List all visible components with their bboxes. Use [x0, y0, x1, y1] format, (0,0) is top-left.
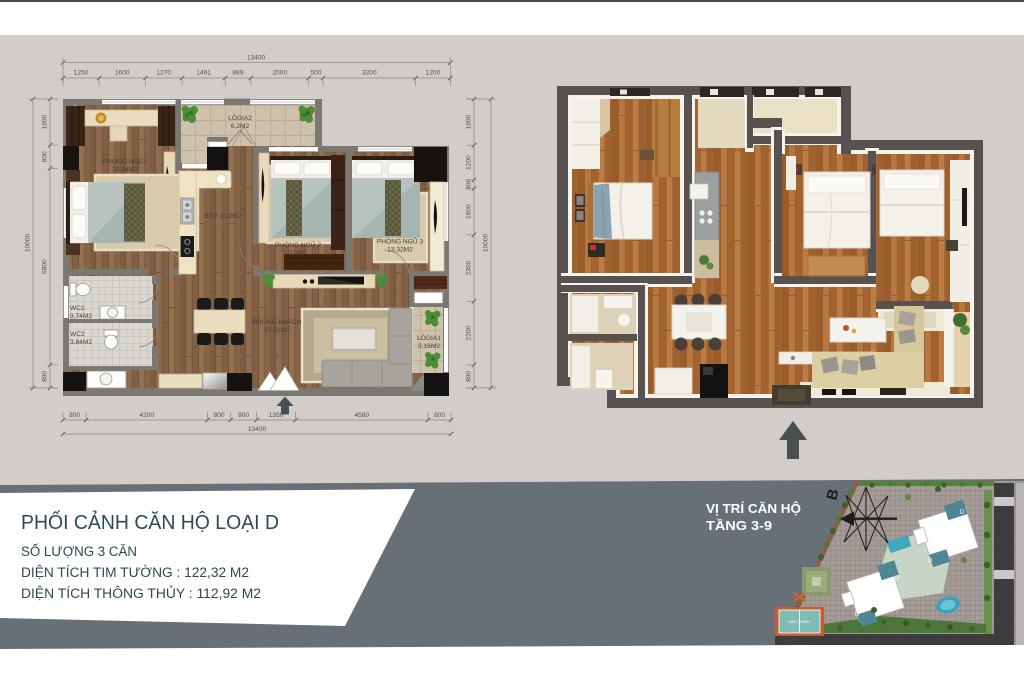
svg-text:DIỆN TÍCH TIM TƯỜNG : 122,32 M: DIỆN TÍCH TIM TƯỜNG : 122,32 M2	[21, 564, 249, 581]
svg-text:13,32M2: 13,32M2	[387, 247, 413, 254]
svg-text:1600: 1600	[466, 114, 473, 129]
svg-text:1491: 1491	[196, 70, 211, 77]
svg-text:4200: 4200	[139, 412, 154, 419]
svg-text:PHÒNG KHÁCH: PHÒNG KHÁCH	[252, 317, 301, 326]
svg-text:13400: 13400	[247, 55, 266, 62]
svg-text:D: D	[855, 612, 860, 618]
svg-text:12M2: 12M2	[290, 250, 307, 257]
svg-text:3200: 3200	[362, 70, 377, 77]
svg-text:2300: 2300	[466, 260, 473, 275]
svg-text:800: 800	[434, 412, 445, 419]
svg-text:DIỆN TÍCH THÔNG THỦY : 112,92: DIỆN TÍCH THÔNG THỦY : 112,92 M2	[21, 584, 261, 602]
svg-text:900: 900	[238, 412, 249, 419]
svg-text:6,2M2: 6,2M2	[231, 123, 250, 130]
svg-text:10000: 10000	[25, 234, 32, 253]
svg-text:1250: 1250	[74, 70, 89, 77]
svg-text:800: 800	[214, 412, 225, 419]
svg-text:TẦNG 3-9: TẦNG 3-9	[706, 518, 772, 533]
svg-text:3,74M2: 3,74M2	[70, 313, 92, 320]
svg-text:PHÒNG NGỦ 2: PHÒNG NGỦ 2	[275, 240, 321, 249]
svg-text:800: 800	[466, 371, 473, 382]
svg-text:889: 889	[232, 70, 243, 77]
svg-text:SỐ LƯỢNG 3 CĂN: SỐ LƯỢNG 3 CĂN	[21, 542, 137, 560]
svg-text:13400: 13400	[248, 426, 267, 433]
svg-text:2000: 2000	[272, 70, 287, 77]
svg-text:PHÒNG NGỦ1: PHÒNG NGỦ1	[103, 157, 148, 166]
svg-text:800: 800	[42, 151, 49, 162]
svg-text:20,54M2: 20,54M2	[112, 167, 138, 174]
svg-text:500: 500	[310, 70, 321, 77]
svg-text:10000: 10000	[483, 234, 490, 253]
svg-text:LÔGIA1: LÔGIA1	[417, 333, 441, 342]
svg-text:LÔGIA2: LÔGIA2	[228, 113, 252, 122]
svg-text:WC1: WC1	[70, 305, 85, 312]
svg-text:1270: 1270	[156, 70, 171, 77]
svg-text:PHÒNG NGỦ 3: PHÒNG NGỦ 3	[377, 237, 423, 246]
svg-text:1200: 1200	[426, 70, 441, 77]
svg-text:800: 800	[42, 371, 49, 382]
svg-text:4580: 4580	[354, 412, 369, 419]
svg-text:D: D	[928, 558, 933, 564]
svg-text:37,52M2: 37,52M2	[264, 327, 290, 334]
svg-text:D: D	[895, 576, 900, 582]
svg-text:800: 800	[69, 412, 80, 419]
svg-text:2,16M2: 2,16M2	[418, 343, 440, 350]
svg-text:1600: 1600	[115, 70, 130, 77]
svg-text:1200: 1200	[466, 155, 473, 170]
svg-text:D: D	[960, 510, 965, 516]
svg-text:6800: 6800	[42, 259, 49, 274]
svg-text:1600: 1600	[466, 204, 473, 219]
svg-text:WC2: WC2	[70, 331, 85, 338]
svg-text:3,84M2: 3,84M2	[70, 339, 92, 346]
svg-text:VỊ TRÍ CĂN HỘ: VỊ TRÍ CĂN HỘ	[706, 501, 801, 516]
svg-text:1600: 1600	[42, 114, 49, 129]
svg-text:1350: 1350	[269, 412, 284, 419]
svg-text:PHỐI CẢNH CĂN HỘ LOẠI D: PHỐI CẢNH CĂN HỘ LOẠI D	[21, 510, 279, 534]
svg-text:2200: 2200	[466, 325, 473, 340]
svg-text:SÂN TENNIS: SÂN TENNIS	[789, 620, 811, 624]
